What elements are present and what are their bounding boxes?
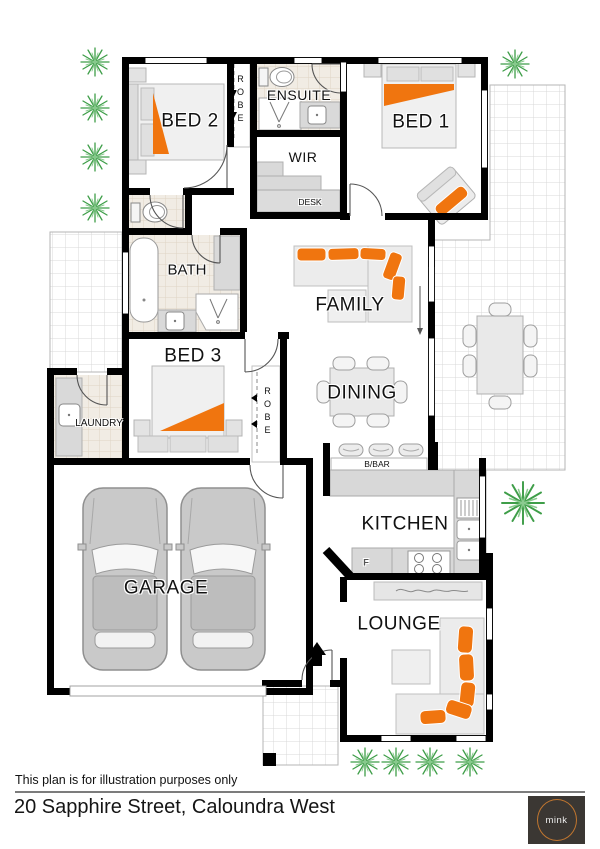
toilet-icon bbox=[259, 68, 268, 86]
label-kitchen: KITCHEN bbox=[362, 515, 449, 534]
disclaimer-text: This plan is for illustration purposes o… bbox=[15, 773, 237, 787]
label-garage: GARAGE bbox=[124, 579, 208, 598]
plant-icon bbox=[382, 748, 410, 776]
sliding-door-arrow bbox=[417, 286, 423, 335]
label-bed3: BED 3 bbox=[164, 347, 221, 366]
wc-fixtures bbox=[131, 202, 167, 222]
garage-door bbox=[70, 686, 266, 696]
label-dining: DINING bbox=[327, 384, 397, 403]
plant-icon bbox=[81, 48, 109, 76]
label-robe-bed3: ROBE bbox=[263, 386, 272, 438]
label-bbar: B/BAR bbox=[364, 460, 390, 469]
bed1-furniture bbox=[364, 61, 477, 226]
plant-icon bbox=[81, 143, 109, 171]
label-ensuite: ENSUITE bbox=[267, 88, 331, 102]
logo-ring-icon: mink bbox=[537, 799, 577, 841]
footer-divider bbox=[15, 791, 585, 793]
plant-icon bbox=[416, 748, 444, 776]
mink-logo: mink bbox=[528, 796, 585, 844]
bathtub-icon bbox=[130, 238, 158, 322]
label-bed1: BED 1 bbox=[392, 113, 449, 132]
plant-icon bbox=[81, 94, 109, 122]
side-courtyard bbox=[50, 232, 122, 372]
laundry-fixtures bbox=[56, 378, 82, 456]
label-bed2: BED 2 bbox=[161, 112, 218, 131]
label-desk: DESK bbox=[298, 198, 321, 207]
bed3-furniture bbox=[134, 366, 242, 452]
label-robe-bed2: ROBE bbox=[236, 74, 245, 126]
plant-icon bbox=[501, 50, 529, 78]
dishrack-icon bbox=[457, 498, 482, 518]
plant-icon bbox=[502, 482, 544, 524]
address-title: 20 Sapphire Street, Caloundra West bbox=[14, 796, 335, 819]
label-bath: BATH bbox=[168, 263, 207, 278]
label-laundry: LAUNDRY bbox=[75, 419, 123, 429]
label-family: FAMILY bbox=[315, 296, 384, 315]
toilet-icon bbox=[131, 203, 140, 222]
floorplan-drawing bbox=[0, 0, 600, 790]
label-wir: WIR bbox=[289, 150, 318, 164]
plant-icon bbox=[81, 194, 109, 222]
plant-icon bbox=[351, 748, 379, 776]
logo-text: mink bbox=[545, 815, 567, 826]
cooktop-icon bbox=[408, 551, 450, 575]
label-fridge: F bbox=[363, 559, 369, 568]
ottoman bbox=[392, 650, 430, 684]
plant-icon bbox=[456, 748, 484, 776]
label-lounge: LOUNGE bbox=[357, 615, 440, 634]
floorplan-page: BED 2 ENSUITE ROBE BED 1 WIR DESK BATH B… bbox=[0, 0, 600, 849]
wir-shelves bbox=[257, 162, 321, 192]
lounge-furniture bbox=[374, 582, 484, 734]
